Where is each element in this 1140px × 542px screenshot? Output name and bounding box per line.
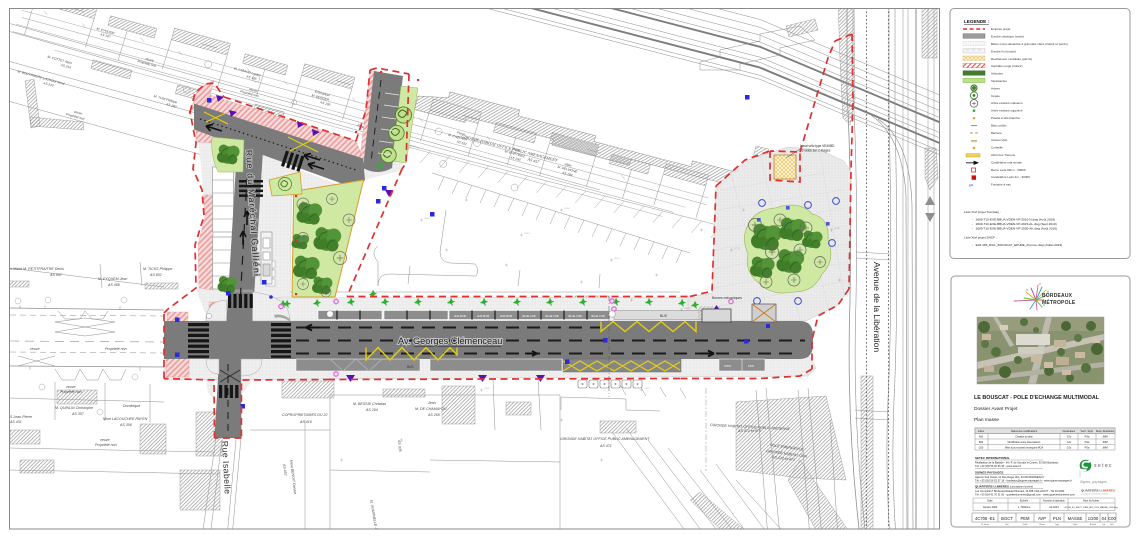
- svg-text:AS 265: AS 265: [427, 413, 440, 417]
- svg-text:+18.2: +18.2: [424, 218, 430, 220]
- svg-text:+18.1: +18.1: [614, 258, 620, 260]
- svg-text:Bornes mécaniques: Bornes mécaniques: [712, 296, 742, 300]
- svg-text:04: 04: [1102, 516, 1107, 521]
- svg-text:GJu: GJu: [1067, 441, 1072, 444]
- svg-text:Indice: Indice: [978, 430, 985, 433]
- svg-text:Nom du fichier: Nom du fichier: [1083, 500, 1099, 503]
- svg-text:+18.2: +18.2: [644, 388, 650, 390]
- svg-text:Echelle: Echelle: [1020, 500, 1029, 503]
- svg-text:QUARTIERS LUMIERES: QUARTIERS LUMIERES: [1081, 489, 1115, 493]
- svg-text:Mme LACOUCHEE-PAYEN: Mme LACOUCHEE-PAYEN: [103, 417, 148, 421]
- svg-text:Arbres: Arbres: [991, 86, 1000, 90]
- svg-text:Objet: Objet: [1073, 523, 1078, 526]
- svg-text:- 2609-T10-EXE-BBUA-VDEN-VP-: - 2609-T10-EXE-BBUA-VDEN-VP-2020-AK.dwg …: [972, 227, 1057, 231]
- svg-text:ALM MVM: ALM MVM: [500, 314, 512, 318]
- svg-text:Arbre existant maintenu: Arbre existant maintenu: [991, 101, 1023, 105]
- svg-text:Dominique: Dominique: [123, 404, 140, 408]
- svg-text:Asphalte rouge (trottoir): Asphalte rouge (trottoir): [991, 64, 1023, 68]
- svg-text:LE BOUSCAT - POLE D'ECHANGE MU: LE BOUSCAT - POLE D'ECHANGE MULTIMODAL: [974, 395, 1100, 401]
- svg-text:N° affaire: N° affaire: [981, 523, 989, 526]
- svg-text:AS 802: AS 802: [149, 273, 162, 277]
- svg-text:Propriété non: Propriété non: [105, 347, 127, 351]
- svg-text:Phase: Phase: [1039, 524, 1044, 526]
- svg-text:C00: C00: [979, 446, 984, 449]
- svg-text:BGCT: BGCT: [1001, 516, 1013, 521]
- svg-text:Agence Sud Ouest, 12 Rue Roger: Agence Sud Ouest, 12 Rue Roger Allo, 33 …: [975, 475, 1044, 479]
- svg-text:Borne Leds 90cm - 3000K: Borne Leds 90cm - 3000K: [991, 168, 1026, 172]
- svg-text:1/200: 1/200: [1088, 516, 1099, 521]
- svg-text:Arbre existant supprimé: Arbre existant supprimé: [991, 109, 1023, 113]
- svg-text:MÉTROPOLE: MÉTROPOLE: [1042, 298, 1076, 306]
- svg-text:Avenue de la Libération: Avenue de la Libération: [872, 262, 882, 352]
- svg-text:Béton micro-désactivé à granul: Béton micro-désactivé à granulats clairs…: [991, 42, 1068, 46]
- svg-text:PGa: PGa: [1085, 441, 1090, 444]
- svg-text:Revêtement modulaire (parvis): Revêtement modulaire (parvis): [991, 57, 1032, 61]
- svg-text:AS 307: AS 307: [71, 412, 85, 416]
- svg-text:BLUE CUB: BLUE CUB: [569, 314, 582, 318]
- svg-text:CITIZ: CITIZ: [724, 364, 731, 368]
- svg-text:BLUE CUB: BLUE CUB: [523, 314, 536, 318]
- svg-text:A00: A00: [979, 435, 984, 438]
- svg-text:JMM: JMM: [1102, 435, 1107, 438]
- svg-text:M. DE CHAMAYOU: M. DE CHAMAYOU: [415, 407, 447, 411]
- svg-text:PGa: PGa: [1085, 446, 1090, 449]
- svg-text:Les Comptoirs? Boulevard Edua: Les Comptoirs? Boulevard Eduard Renard, …: [975, 489, 1065, 493]
- svg-text:Mise à jour suivant remarques: Mise à jour suivant remarques MOA: [1005, 446, 1044, 449]
- svg-text:Barrière: Barrière: [991, 131, 1002, 135]
- svg-text:BLUE CUB: BLUE CUB: [592, 314, 605, 318]
- svg-text:Date: Date: [987, 500, 993, 503]
- svg-text:setec: setec: [1094, 463, 1113, 469]
- svg-text:Enrobé classique (voirie): Enrobé classique (voirie): [991, 35, 1024, 39]
- svg-text:Site: Site: [1005, 523, 1008, 526]
- svg-text:Tél: +33 (0)5 56 51 57 16 - bo: Tél: +33 (0)5 56 51 57 16 - bordeaux@sig…: [975, 478, 1072, 482]
- svg-text:4C706 -E1: 4C706 -E1: [975, 516, 996, 521]
- svg-text:Liste Xref projet Tramway :: Liste Xref projet Tramway :: [964, 210, 1001, 214]
- svg-text:Plan masse: Plan masse: [974, 417, 999, 423]
- svg-text:COPROPRIETAIRES DU 22: COPROPRIETAIRES DU 22: [282, 413, 327, 417]
- svg-text:Arbustes: Arbustes: [991, 72, 1003, 76]
- svg-text:C00: C00: [1108, 516, 1116, 521]
- svg-text:Tél: +33 (0)4 91 76 31 81 - qu: Tél: +33 (0)4 91 76 31 81 - quartierslum…: [975, 493, 1075, 497]
- svg-text:Av. Georges Clémenceau: Av. Georges Clémenceau: [398, 336, 502, 346]
- svg-text:- 2609-T10-EXE-BBUA-VDEN-VP-: - 2609-T10-EXE-BBUA-VDEN-VP-2015-AL.dwg …: [972, 222, 1057, 226]
- svg-text:Type: Type: [1055, 524, 1059, 526]
- svg-text:BUS: BUS: [660, 314, 668, 318]
- svg-text:Resp. Restitution: Resp. Restitution: [1096, 430, 1115, 433]
- svg-text:M. TICKS Philippe: M. TICKS Philippe: [143, 267, 172, 271]
- svg-text:+17.8: +17.8: [834, 228, 840, 230]
- svg-text:Tél: +33 (0)5 56 02 66 30 - ww: Tél: +33 (0)5 56 02 66 30 - www.setec.fr: [975, 464, 1021, 468]
- svg-text:Jean: Jean: [427, 401, 436, 405]
- svg-text:AS 471: AS 471: [599, 444, 612, 448]
- svg-text:Signes_paysages: Signes_paysages: [1080, 480, 1107, 484]
- svg-text:AS 431: AS 431: [9, 420, 22, 424]
- svg-text:Potelet à tête blanche: Potelet à tête blanche: [991, 116, 1020, 120]
- svg-text:GJu: GJu: [1067, 435, 1072, 438]
- svg-text:ALM MVM: ALM MVM: [477, 314, 489, 318]
- svg-text:Cépée: Cépée: [991, 94, 1000, 98]
- svg-text:+18.4: +18.4: [564, 208, 570, 210]
- svg-text:veuve: veuve: [30, 347, 40, 351]
- svg-text:1 : 500ème: 1 : 500ème: [1018, 506, 1031, 509]
- svg-text:Numéro d'opération: Numéro d'opération: [1043, 500, 1065, 503]
- svg-text:n-Marie M. PETITFRAITRE Denis: n-Marie M. PETITFRAITRE Denis: [10, 267, 64, 271]
- svg-text:TAXI: TAXI: [748, 364, 754, 368]
- svg-text:Abris bus Trémois: Abris bus Trémois: [991, 153, 1016, 157]
- svg-text:Enrobé fin (trottoir): Enrobé fin (trottoir): [991, 49, 1016, 53]
- svg-text:a1-4244: a1-4244: [1049, 506, 1059, 509]
- svg-text:Propriété non: Propriété non: [60, 390, 82, 394]
- svg-text:Propriété non: Propriété non: [95, 443, 117, 447]
- svg-text:ALM MVM: ALM MVM: [454, 314, 466, 318]
- svg-text:Fontaine à eau: Fontaine à eau: [991, 183, 1011, 187]
- svg-text:Local vélo type VE40BD: Local vélo type VE40BD: [800, 144, 835, 148]
- svg-text:Banc public: Banc public: [991, 123, 1007, 127]
- svg-text:Dessinateur: Dessinateur: [1063, 430, 1076, 433]
- svg-text:Ind.: Ind.: [1102, 524, 1106, 526]
- svg-text:Corbeille: Corbeille: [991, 146, 1003, 150]
- svg-text:S Jean-Pierre: S Jean-Pierre: [10, 415, 32, 419]
- svg-text:AS 416: AS 416: [299, 420, 312, 424]
- svg-text:MASSE: MASSE: [1068, 516, 1083, 521]
- svg-text:+18.5: +18.5: [484, 388, 490, 390]
- svg-text:BUS: BUS: [407, 365, 414, 369]
- svg-text:Liste Xref projet SNCF :: Liste Xref projet SNCF :: [964, 236, 997, 240]
- svg-text:4C706_E1_BGCT_PEM_AVP_PLN_MASS: 4C706_E1_BGCT_PEM_AVP_PLN_MASSE_C00.dwg: [1064, 506, 1118, 509]
- svg-text:JMM: JMM: [1102, 446, 1107, 449]
- svg-text:GJu: GJu: [1067, 446, 1072, 449]
- svg-text:+18.3: +18.3: [524, 233, 530, 235]
- svg-text:M. QUINLIN Christophe: M. QUINLIN Christophe: [55, 406, 93, 410]
- svg-text:SETEC INTERNATIONAL: SETEC INTERNATIONAL: [975, 456, 1010, 460]
- svg-text:veuve: veuve: [66, 385, 76, 389]
- svg-text:Entité: Entité: [1023, 523, 1028, 526]
- svg-text:Rév.: Rév.: [1110, 524, 1114, 526]
- svg-text:PEM: PEM: [1020, 516, 1030, 521]
- svg-text:Emprise projet: Emprise projet: [991, 27, 1011, 31]
- svg-text:Création du plan: Création du plan: [1015, 435, 1033, 438]
- svg-text:Janvier 2020: Janvier 2020: [983, 506, 998, 509]
- svg-text:Dossier Avant Projet: Dossier Avant Projet: [974, 406, 1018, 412]
- svg-text:AS 472 et 473: AS 472 et 473: [737, 429, 761, 433]
- svg-text:Tapissantes: Tapissantes: [991, 79, 1007, 83]
- svg-text:c=: c=: [969, 183, 973, 187]
- svg-text:AS 857: AS 857: [49, 273, 63, 277]
- svg-text:AS 458: AS 458: [107, 283, 120, 287]
- svg-text:Modification suite observation: Modification suite observations: [1008, 441, 1041, 444]
- svg-text:AVP: AVP: [1038, 516, 1046, 521]
- svg-text:veuve: veuve: [100, 438, 110, 442]
- svg-text:SIGNES PAYSAGES: SIGNES PAYSAGES: [975, 470, 1003, 474]
- svg-text:Echelle: Echelle: [1090, 524, 1096, 526]
- svg-text:PGa: PGa: [1085, 435, 1090, 438]
- svg-text:M. BESSIE Christian: M. BESSIE Christian: [353, 402, 386, 406]
- svg-text:Candélabre Leds 4m - 3000K: Candélabre Leds 4m - 3000K: [991, 175, 1030, 179]
- svg-text:GIRONDE HABITAT OFFICE PUBLIC: GIRONDE HABITAT OFFICE PUBLIC AMENAGEMEN…: [560, 437, 650, 441]
- svg-text:QUARTIERS LUMIERES (concepteur: QUARTIERS LUMIERES (concepteurs lumière): [975, 485, 1033, 489]
- svg-text:+17.9: +17.9: [734, 248, 740, 250]
- svg-text:M. EYQUEM Jean: M. EYQUEM Jean: [98, 277, 127, 281]
- svg-text:B00: B00: [979, 441, 984, 444]
- svg-text:JMM: JMM: [1102, 441, 1107, 444]
- svg-text:Réalisation de la Bastide - 64: Réalisation de la Bastide - 64 r.F. de S…: [975, 461, 1059, 465]
- svg-text:BORDEAUX: BORDEAUX: [1042, 293, 1073, 299]
- svg-text:AS 306: AS 306: [119, 423, 132, 427]
- svg-text:LEGENDE :: LEGENDE :: [964, 19, 989, 24]
- svg-text:concepteurs et plasticiens lum: concepteurs et plasticiens lumière: [1081, 493, 1108, 496]
- svg-text:BLUE CUB: BLUE CUB: [546, 314, 559, 318]
- svg-text:+18.0: +18.0: [684, 308, 690, 310]
- svg-text:PLN: PLN: [1053, 516, 1061, 521]
- svg-text:Nature des modifications: Nature des modifications: [1011, 430, 1038, 433]
- svg-text:AS 264: AS 264: [365, 408, 378, 412]
- svg-text:Arceau Vélo: Arceau Vélo: [991, 138, 1008, 142]
- svg-text:- 2609-T10-EXE-BBUA-VDEN-VP-: - 2609-T10-EXE-BBUA-VDEN-VP-2010-N.dwg (…: [972, 218, 1055, 222]
- svg-text:Vérif. / Appr.: Vérif. / Appr.: [1080, 430, 1093, 433]
- svg-text:Candélabre mât simple: Candélabre mât simple: [991, 160, 1022, 164]
- svg-text:40 vélos sur 2 étages: 40 vélos sur 2 étages: [800, 149, 831, 153]
- svg-text:- E18-465_RAIL_BOUSCAT_EPURE: - E18-465_RAIL_BOUSCAT_EPURE_(Fercou.dwg…: [972, 243, 1062, 247]
